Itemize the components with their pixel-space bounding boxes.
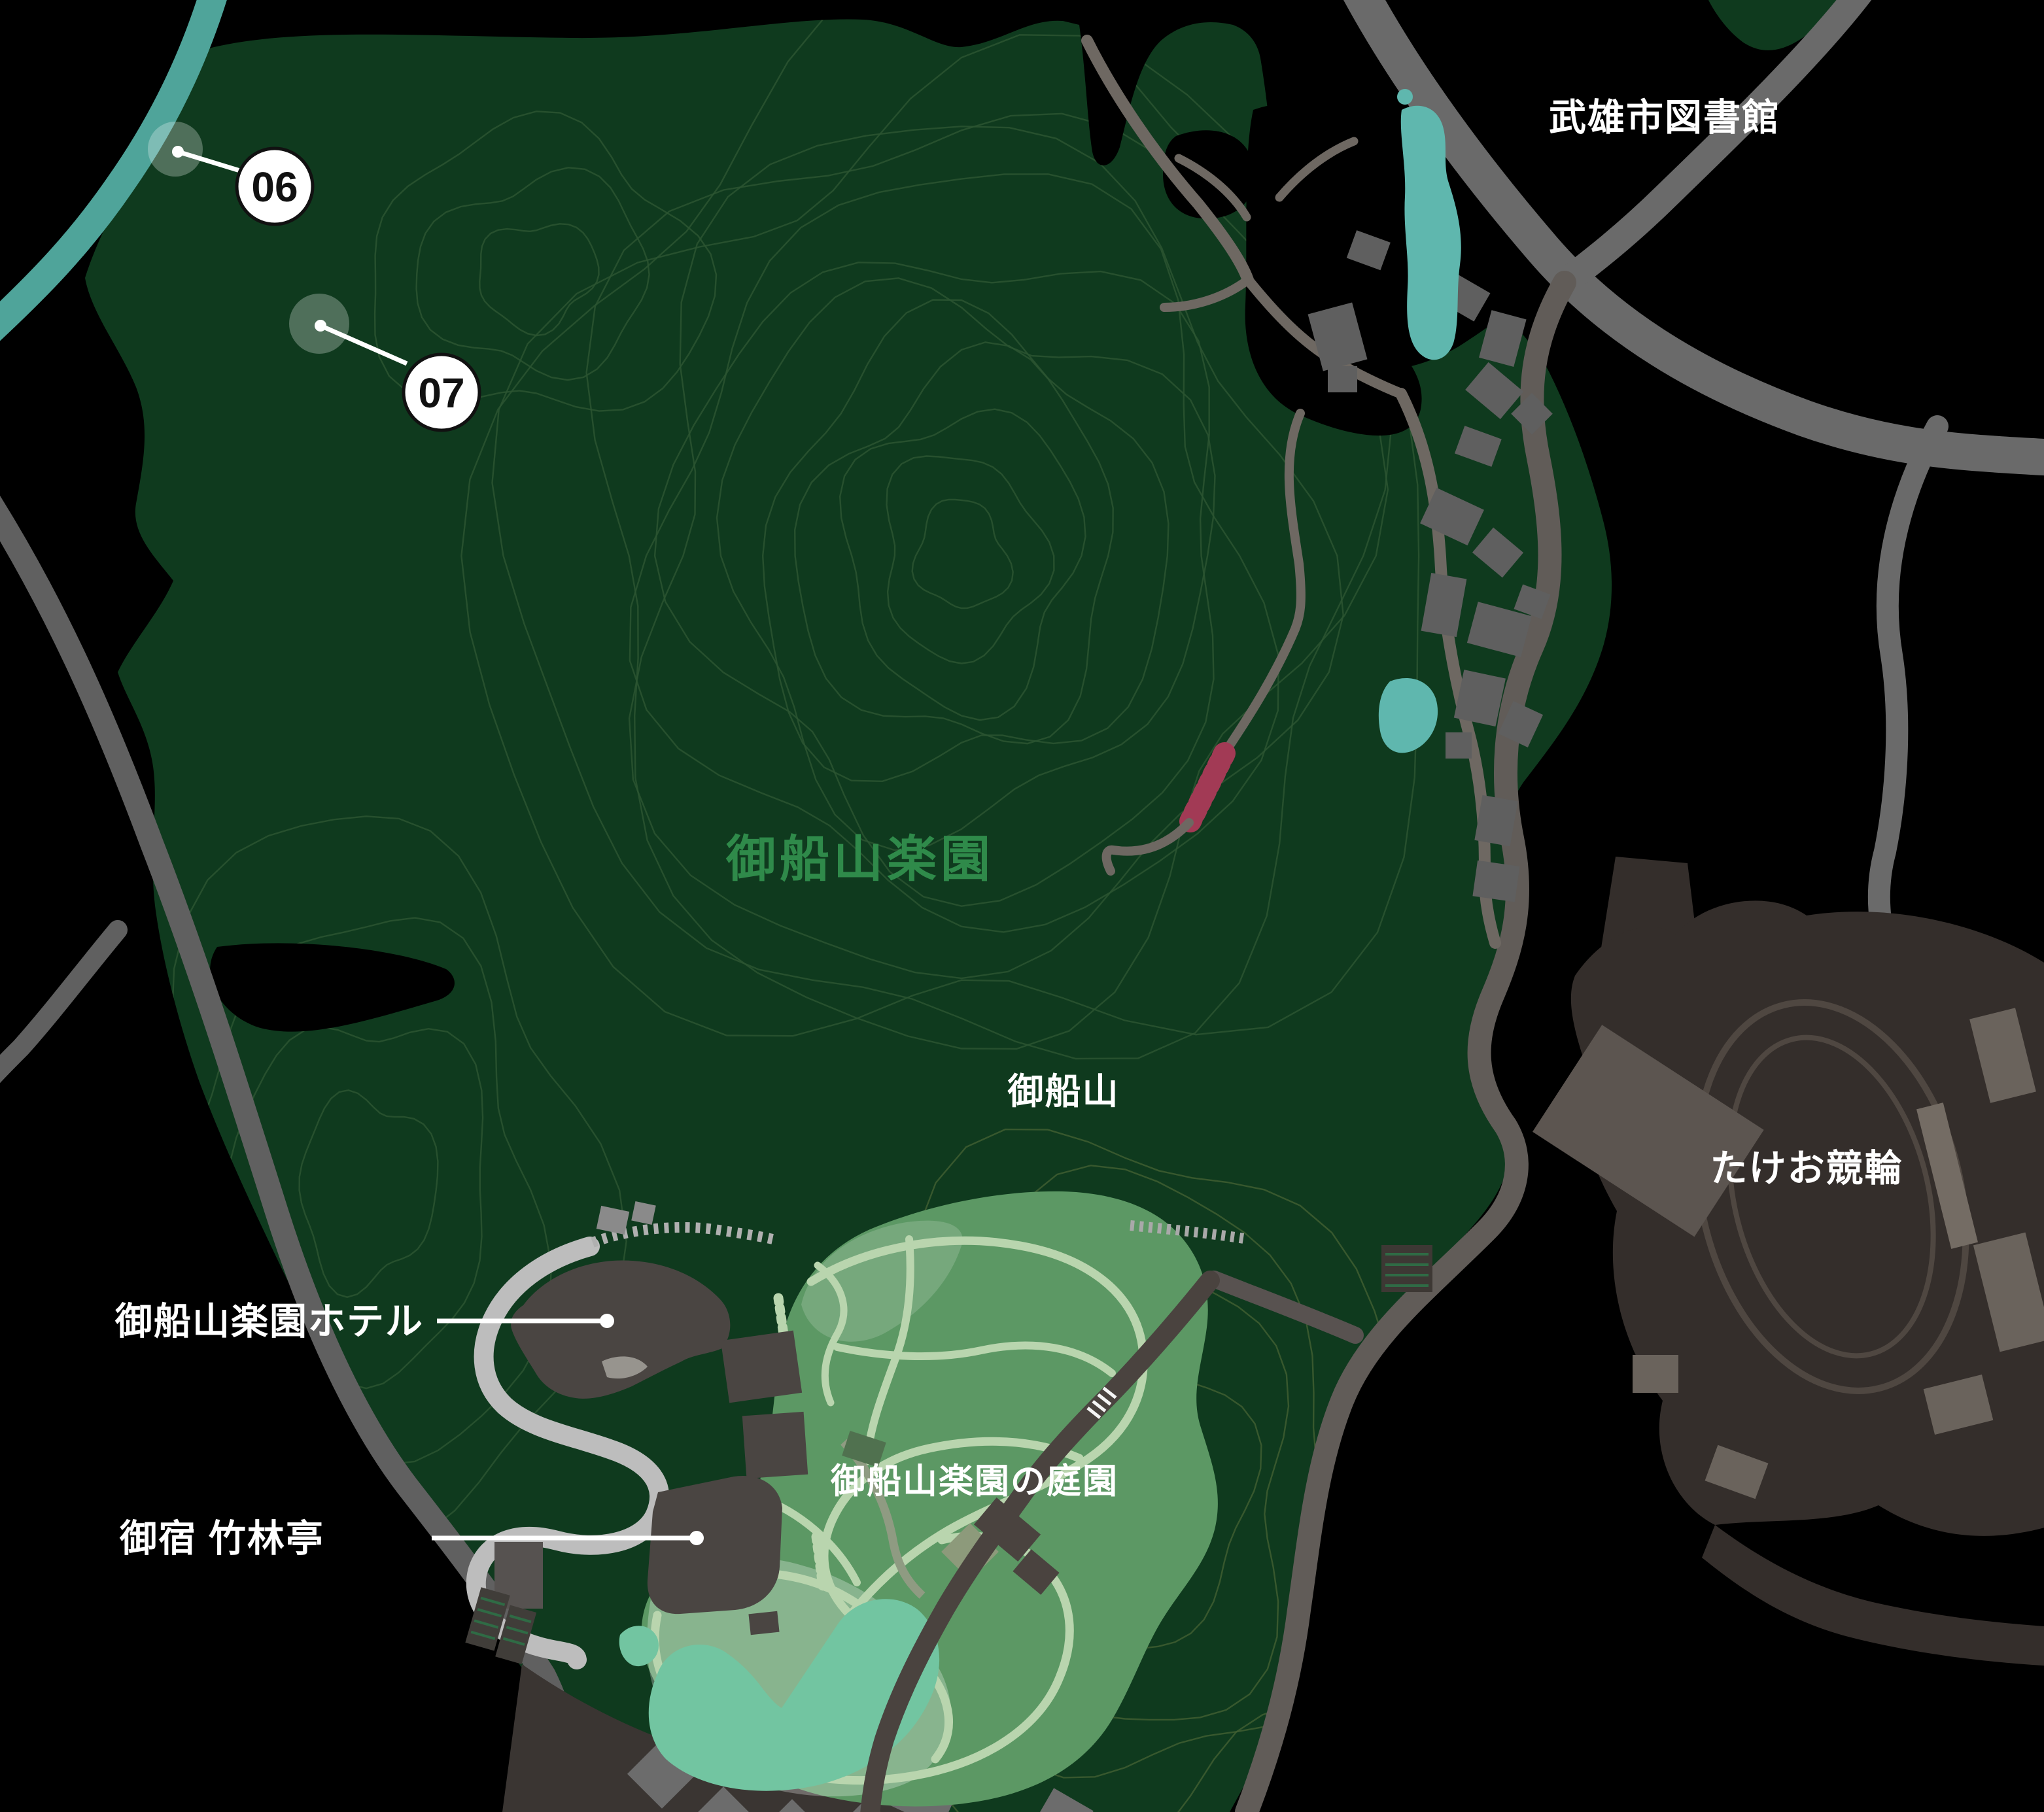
library-label: 武雄市図書館 (1549, 97, 1780, 139)
marker-07-number: 07 (418, 369, 464, 417)
mifuneyama-map: 06 07 武雄市図書館 御船山楽園 御船山 たけお競輪 御船山楽園の庭園 御船… (0, 0, 2044, 1812)
ryokan-label: 御宿 竹林亭 (119, 1518, 324, 1560)
marker-06-dot (172, 146, 184, 158)
marker-07-dot (315, 320, 326, 332)
striped-shed (1381, 1245, 1432, 1292)
hotel-label: 御船山楽園ホテル (114, 1301, 424, 1342)
mountain-label: 御船山 (1007, 1071, 1119, 1112)
map-viewport: 06 07 武雄市図書館 御船山楽園 御船山 たけお競輪 御船山楽園の庭園 御船… (0, 0, 2044, 1812)
marker-06-number: 06 (251, 163, 298, 211)
ryokan-building (648, 1476, 782, 1614)
garden-label: 御船山楽園の庭園 (830, 1462, 1118, 1501)
hotel-leader-dot (600, 1314, 614, 1328)
library-pond-small (1397, 89, 1413, 105)
park-label: 御船山楽園 (725, 832, 994, 887)
keirin-label: たけお競輪 (1710, 1148, 1903, 1189)
ryokan-leader-dot (689, 1531, 704, 1545)
